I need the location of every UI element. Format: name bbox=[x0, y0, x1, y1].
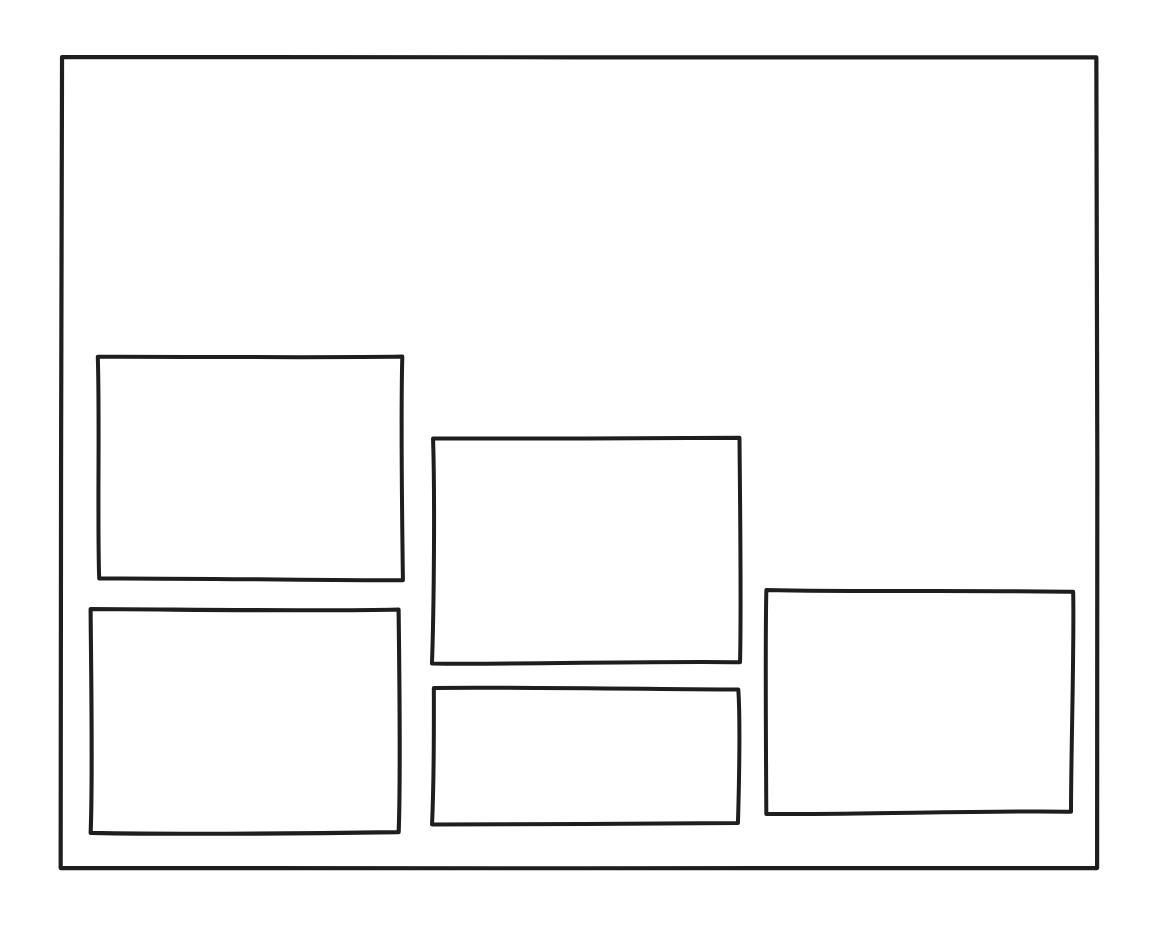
box-bottom-left bbox=[91, 609, 400, 834]
box-right bbox=[766, 590, 1074, 814]
sketch-canvas bbox=[0, 0, 1150, 942]
box-top-left bbox=[98, 357, 403, 581]
box-bottom-middle bbox=[432, 688, 739, 825]
sketch-svg bbox=[0, 0, 1150, 942]
box-middle bbox=[432, 438, 741, 664]
